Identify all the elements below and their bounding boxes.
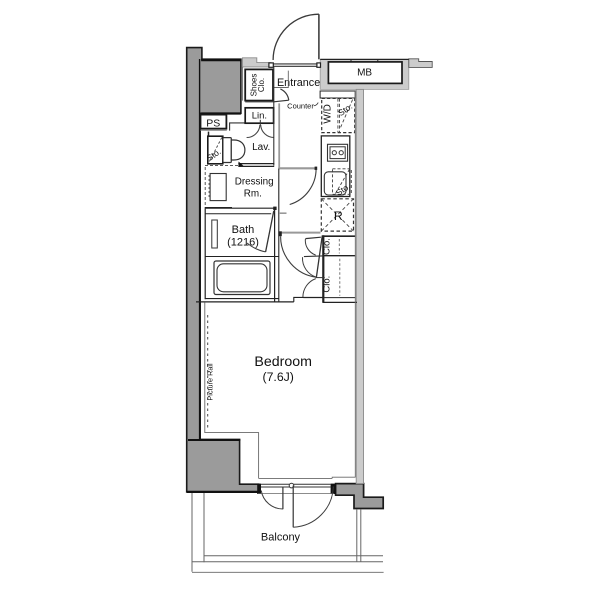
svg-text:Balcony: Balcony bbox=[261, 531, 301, 543]
svg-text:Bath: Bath bbox=[232, 224, 255, 236]
svg-text:Clo.: Clo. bbox=[257, 78, 266, 92]
svg-text:Picture Rail: Picture Rail bbox=[206, 363, 215, 401]
svg-text:Lin.: Lin. bbox=[252, 111, 267, 122]
svg-text:PS: PS bbox=[206, 117, 220, 129]
svg-text:Dressing: Dressing bbox=[235, 177, 274, 188]
svg-text:Lav.: Lav. bbox=[252, 142, 270, 153]
svg-text:Rm.: Rm. bbox=[244, 189, 262, 200]
svg-text:Counter: Counter bbox=[287, 101, 314, 110]
svg-text:Clo.: Clo. bbox=[322, 238, 333, 255]
svg-text:MB: MB bbox=[357, 68, 372, 79]
svg-text:(1216): (1216) bbox=[227, 236, 259, 248]
svg-text:Bedroom: Bedroom bbox=[254, 354, 312, 370]
svg-text:W/D: W/D bbox=[322, 104, 333, 123]
svg-text:R: R bbox=[334, 209, 343, 223]
svg-text:(7.6J): (7.6J) bbox=[262, 370, 293, 384]
svg-text:Clo.: Clo. bbox=[322, 276, 333, 293]
